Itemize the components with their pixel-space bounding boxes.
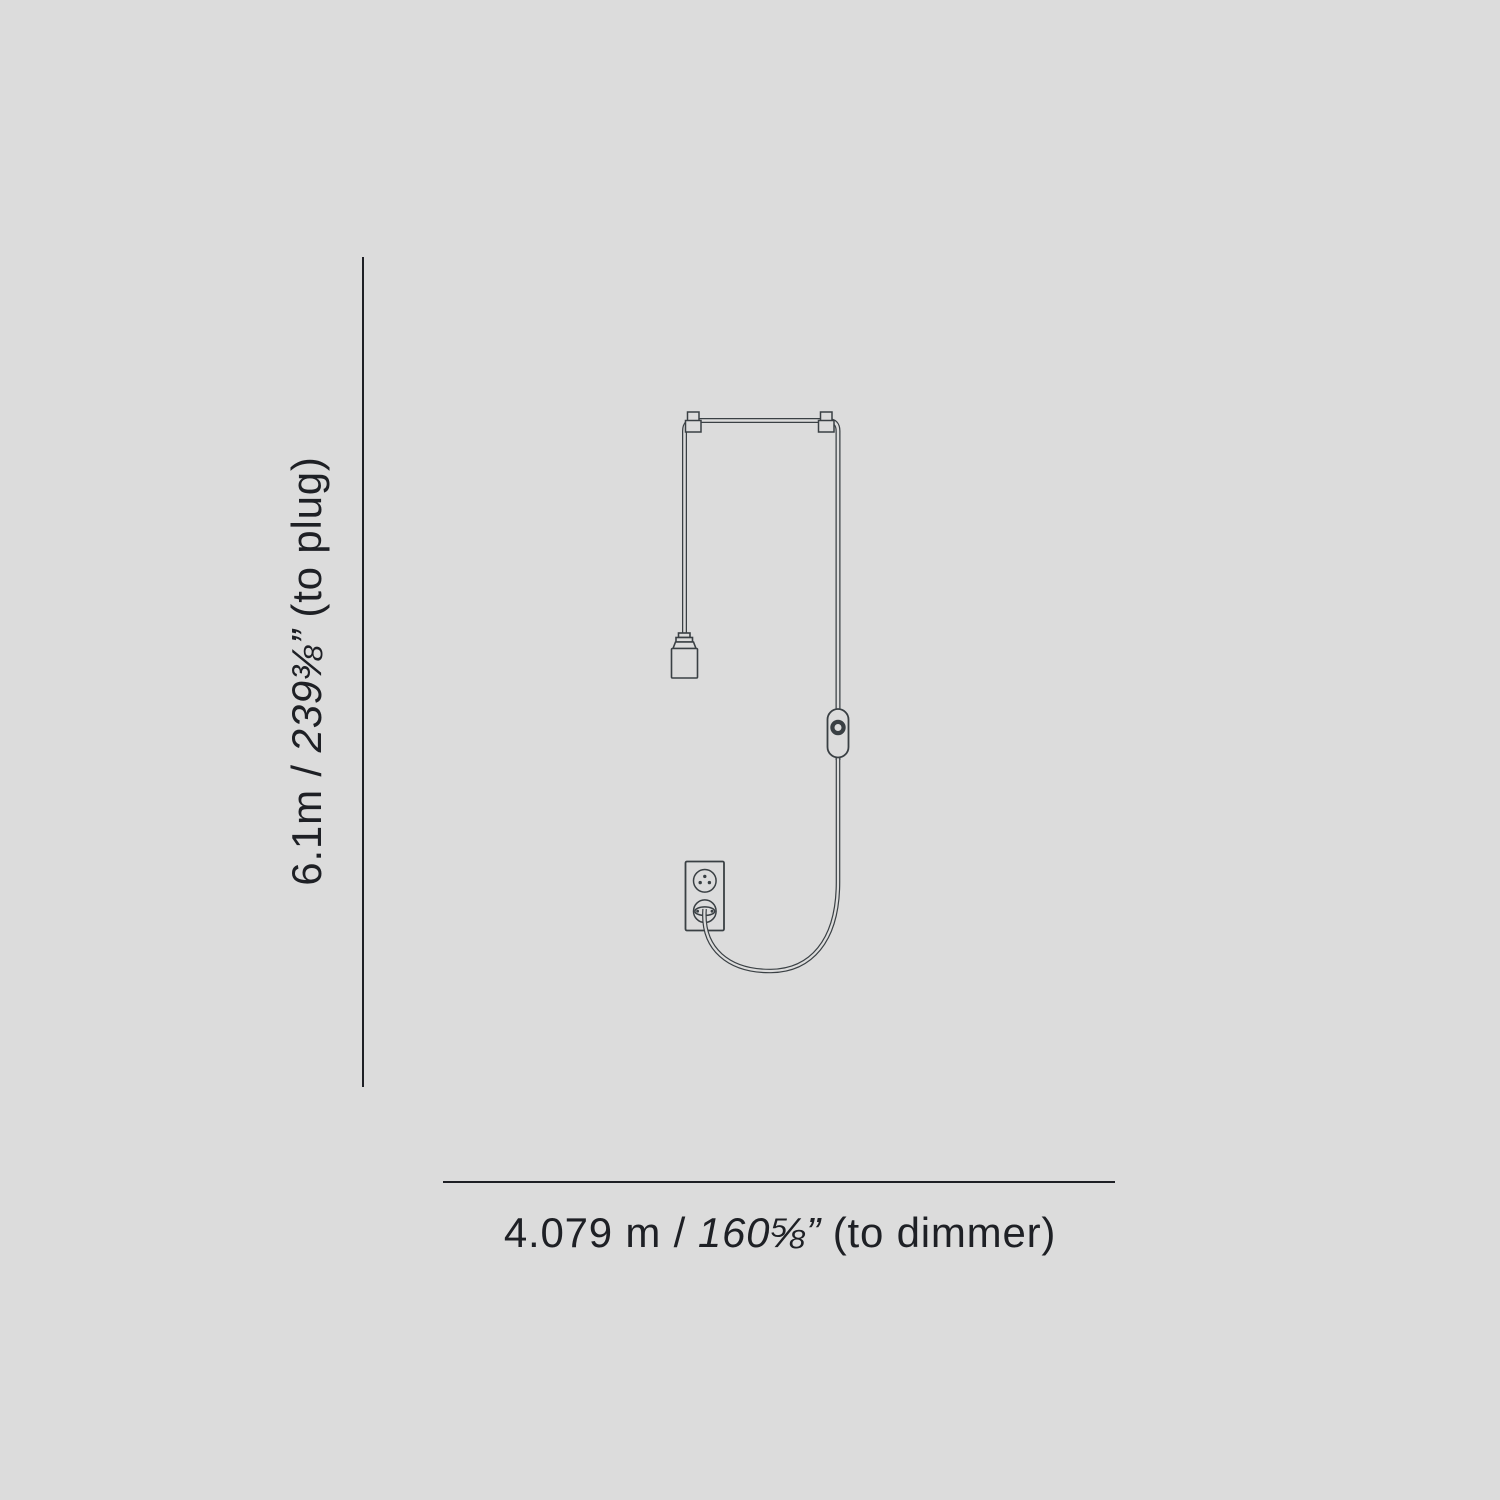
vertical-dimension-label: 6.1m / 239⅜” (to plug): [283, 456, 331, 885]
horizontal-metric-value: 4.079 m /: [504, 1209, 686, 1257]
mounting-clip-left: [686, 412, 702, 432]
horizontal-dimension-label: 4.079 m / 160⅝” (to dimmer): [504, 1209, 1056, 1257]
horizontal-label-suffix: (to dimmer): [833, 1209, 1056, 1257]
vertical-label-suffix: (to plug): [283, 456, 331, 617]
vertical-dimension-line: [362, 257, 364, 1087]
horizontal-dimension-line: [443, 1181, 1115, 1183]
lamp-dimension-diagram: 6.1m / 239⅜” (to plug) 4.079 m / 160⅝” (…: [0, 0, 1500, 1500]
vertical-imperial-value: 239⅜”: [283, 629, 331, 752]
bulb-socket: [672, 633, 698, 678]
lamp-line-drawing: [640, 390, 900, 1000]
pendant-cable-and-track: [685, 421, 839, 761]
dimmer-switch: [828, 709, 849, 758]
horizontal-imperial-value: 160⅝”: [698, 1209, 821, 1257]
vertical-metric-value: 6.1m /: [283, 764, 331, 886]
mounting-clip-right: [819, 412, 835, 432]
outlet-socket-top: [694, 870, 717, 893]
dimmer-dial: [832, 722, 843, 733]
